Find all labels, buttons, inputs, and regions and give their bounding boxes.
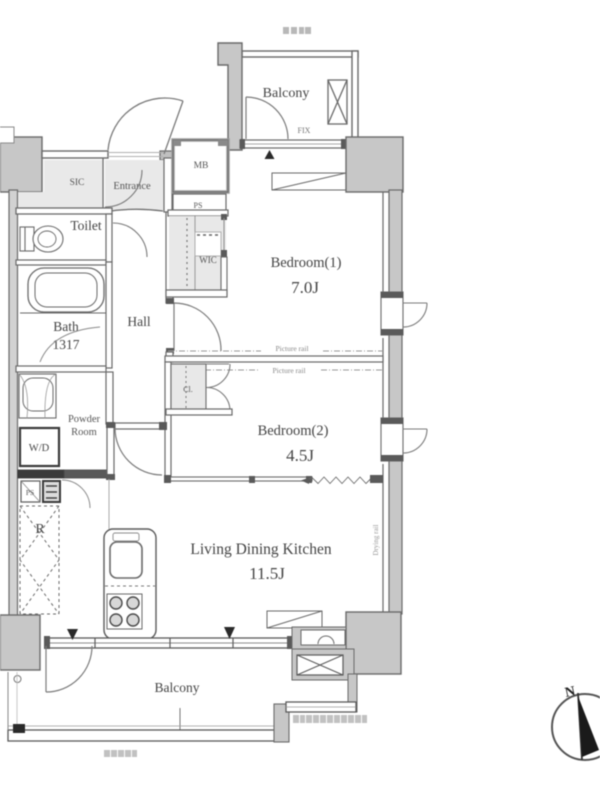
svg-text:Hall: Hall xyxy=(127,314,150,329)
svg-text:Picture rail: Picture rail xyxy=(272,366,305,375)
svg-text:1317: 1317 xyxy=(53,337,80,352)
svg-text:Powder: Powder xyxy=(68,414,101,425)
svg-text:4.5J: 4.5J xyxy=(286,446,314,465)
svg-text:Balcony: Balcony xyxy=(155,680,200,695)
svg-text:MB: MB xyxy=(194,161,209,171)
svg-text:Living Dining Kitchen: Living Dining Kitchen xyxy=(190,541,331,558)
svg-text:FIX: FIX xyxy=(298,126,311,135)
svg-text:Picture rail: Picture rail xyxy=(275,344,308,353)
svg-text:Bedroom(1): Bedroom(1) xyxy=(271,255,342,271)
svg-text:SIC: SIC xyxy=(70,178,85,188)
svg-text:Entrance: Entrance xyxy=(113,181,151,192)
svg-text:Toilet: Toilet xyxy=(70,218,102,233)
svg-text:7.0J: 7.0J xyxy=(291,278,319,297)
svg-text:WIC: WIC xyxy=(199,255,217,265)
svg-text:PS: PS xyxy=(26,488,34,497)
svg-text:N: N xyxy=(564,684,577,701)
svg-text:Bedroom(2): Bedroom(2) xyxy=(258,423,329,439)
svg-text:Room: Room xyxy=(71,427,97,438)
svg-text:Balcony: Balcony xyxy=(263,86,310,101)
svg-text:Drying rail: Drying rail xyxy=(372,524,380,555)
svg-text:R: R xyxy=(35,522,45,537)
svg-text:Cl.: Cl. xyxy=(183,385,193,394)
svg-text:PS: PS xyxy=(194,201,203,210)
svg-text:11.5J: 11.5J xyxy=(249,564,285,583)
svg-text:W/D: W/D xyxy=(29,443,50,454)
